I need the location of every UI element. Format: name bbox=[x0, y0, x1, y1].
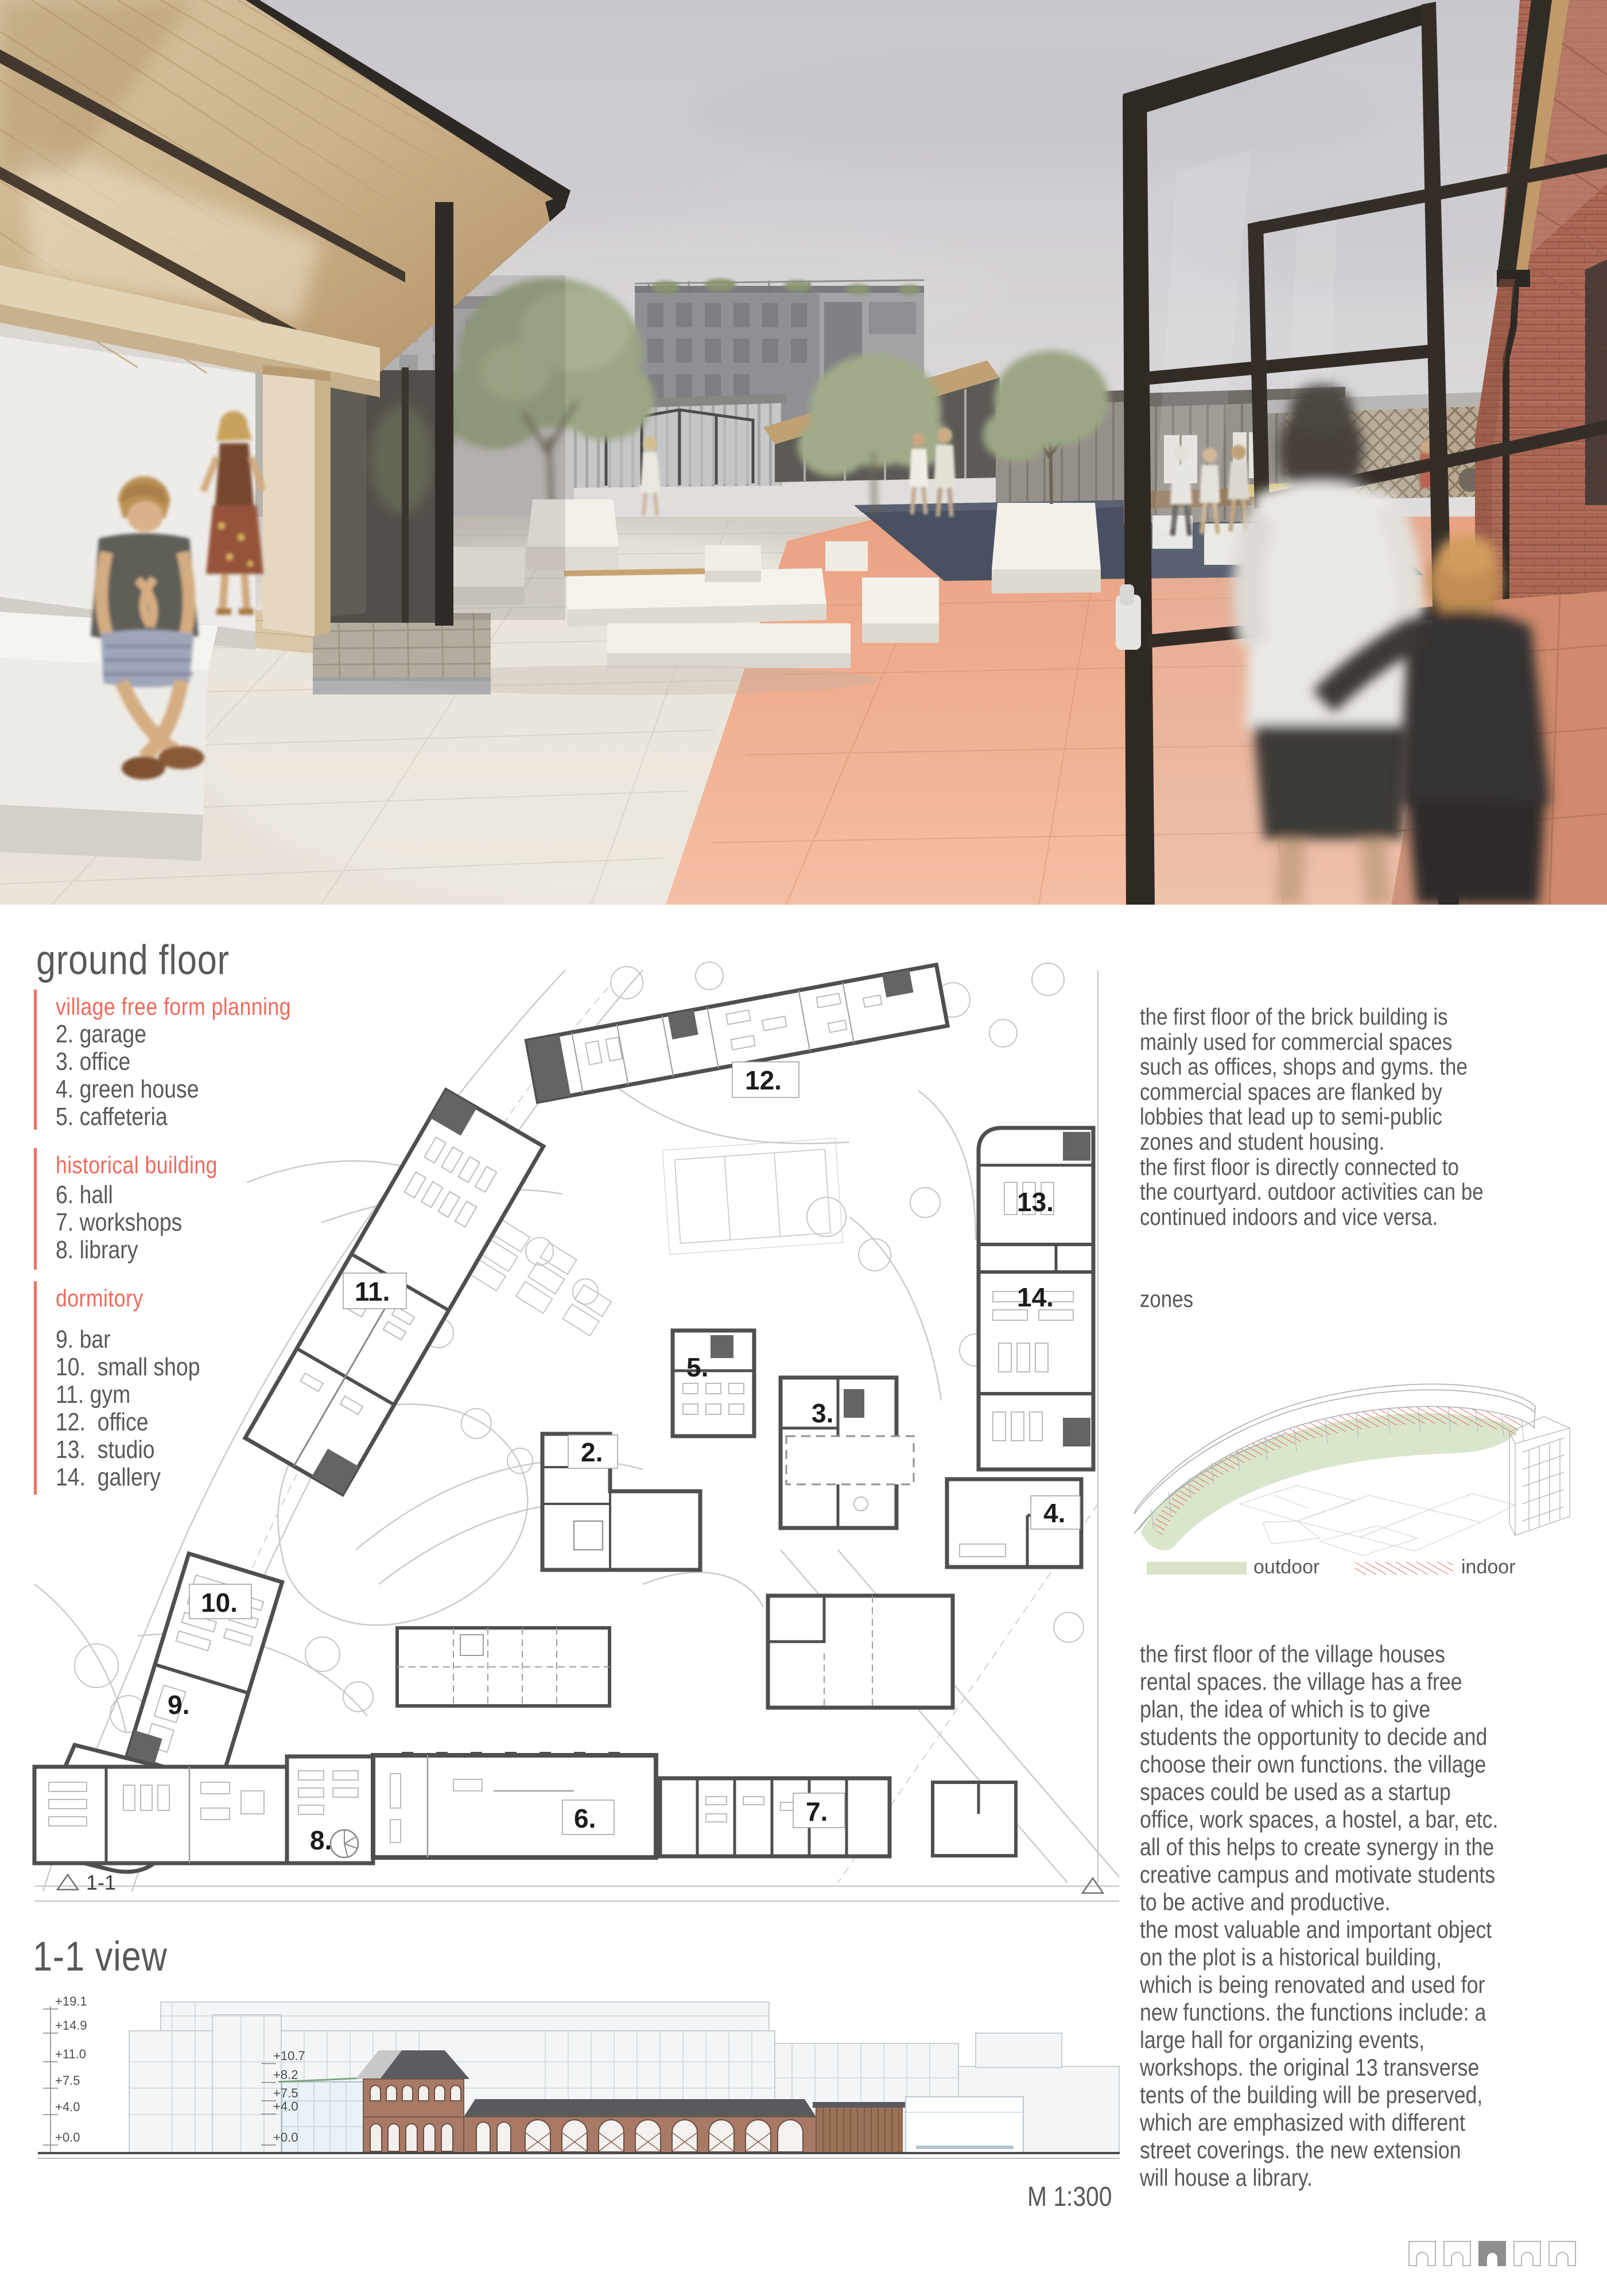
svg-text:8.: 8. bbox=[310, 1825, 332, 1855]
svg-text:+10.7: +10.7 bbox=[273, 2049, 305, 2063]
svg-text:outdoor: outdoor bbox=[1253, 1556, 1319, 1578]
svg-text:+11.0: +11.0 bbox=[55, 2047, 86, 2061]
svg-text:1-1: 1-1 bbox=[86, 1871, 116, 1894]
svg-text:7.: 7. bbox=[806, 1797, 828, 1826]
svg-text:4.: 4. bbox=[1043, 1498, 1065, 1528]
svg-text:+7.5: +7.5 bbox=[55, 2073, 80, 2088]
svg-text:+19.1: +19.1 bbox=[55, 1994, 87, 2008]
svg-text:+0.0: +0.0 bbox=[273, 2130, 298, 2144]
svg-text:+4.0: +4.0 bbox=[273, 2099, 298, 2113]
svg-text:10.: 10. bbox=[201, 1588, 238, 1618]
svg-text:5.: 5. bbox=[686, 1352, 708, 1382]
svg-text:+14.9: +14.9 bbox=[55, 2018, 87, 2033]
svg-text:indoor: indoor bbox=[1461, 1556, 1516, 1578]
svg-text:2.: 2. bbox=[581, 1437, 603, 1467]
svg-text:14.: 14. bbox=[1017, 1282, 1054, 1312]
svg-text:+7.5: +7.5 bbox=[273, 2086, 298, 2100]
svg-text:6.: 6. bbox=[574, 1804, 596, 1833]
svg-text:+8.2: +8.2 bbox=[273, 2068, 298, 2082]
svg-text:+0.0: +0.0 bbox=[55, 2130, 80, 2144]
svg-text:+4.0: +4.0 bbox=[55, 2100, 80, 2114]
svg-text:3.: 3. bbox=[812, 1398, 833, 1428]
svg-text:9.: 9. bbox=[168, 1690, 189, 1720]
svg-text:11.: 11. bbox=[355, 1277, 390, 1306]
svg-text:13.: 13. bbox=[1017, 1187, 1054, 1217]
svg-text:12.: 12. bbox=[745, 1065, 782, 1095]
